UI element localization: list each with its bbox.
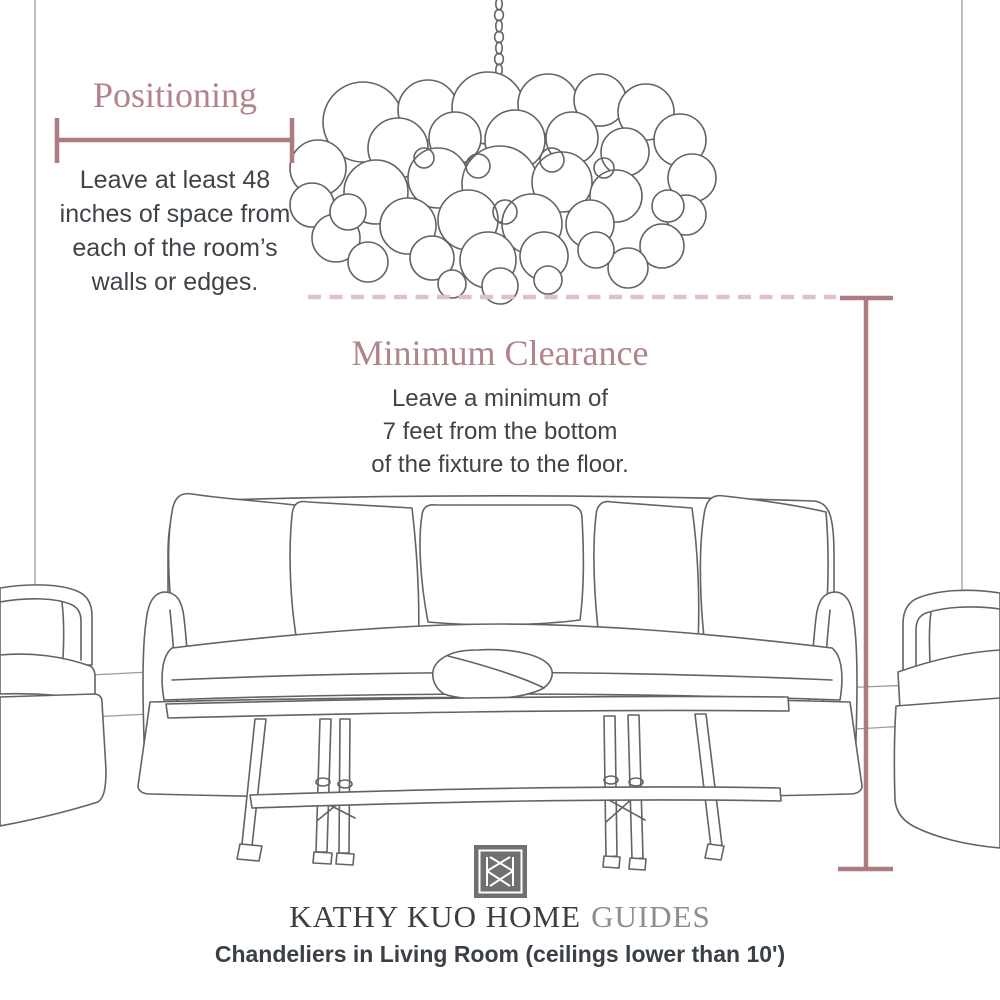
clearance-line-3: of the fixture to the floor. xyxy=(300,448,700,481)
chandelier-chain xyxy=(495,0,504,84)
clearance-line-2: 7 feet from the bottom xyxy=(300,415,700,448)
illustration-canvas xyxy=(0,0,1000,1000)
guide-caption: Chandeliers in Living Room (ceilings low… xyxy=(0,941,1000,968)
left-armchair-illustration xyxy=(0,585,106,826)
positioning-line-3: each of the room’s xyxy=(26,231,324,265)
clearance-description: Leave a minimum of 7 feet from the botto… xyxy=(300,382,700,481)
width-measure-bracket xyxy=(57,118,292,163)
infographic-page: Positioning Leave at least 48 inches of … xyxy=(0,0,1000,1000)
positioning-description: Leave at least 48 inches of space from e… xyxy=(26,163,324,299)
brand-wordmark: KATHY KUO HOMEGUIDES xyxy=(0,899,1000,935)
positioning-line-4: walls or edges. xyxy=(26,265,324,299)
brand-name: KATHY KUO HOME xyxy=(289,899,581,934)
chandelier-illustration xyxy=(290,72,716,304)
right-armchair-illustration xyxy=(894,590,1000,848)
sofa-illustration xyxy=(138,494,862,799)
brand-suffix: GUIDES xyxy=(591,899,711,934)
clearance-title: Minimum Clearance xyxy=(300,334,700,374)
brand-logo-monogram-icon xyxy=(474,845,527,898)
positioning-line-2: inches of space from xyxy=(26,197,324,231)
positioning-line-1: Leave at least 48 xyxy=(26,163,324,197)
positioning-title: Positioning xyxy=(30,76,320,116)
clearance-line-1: Leave a minimum of xyxy=(300,382,700,415)
